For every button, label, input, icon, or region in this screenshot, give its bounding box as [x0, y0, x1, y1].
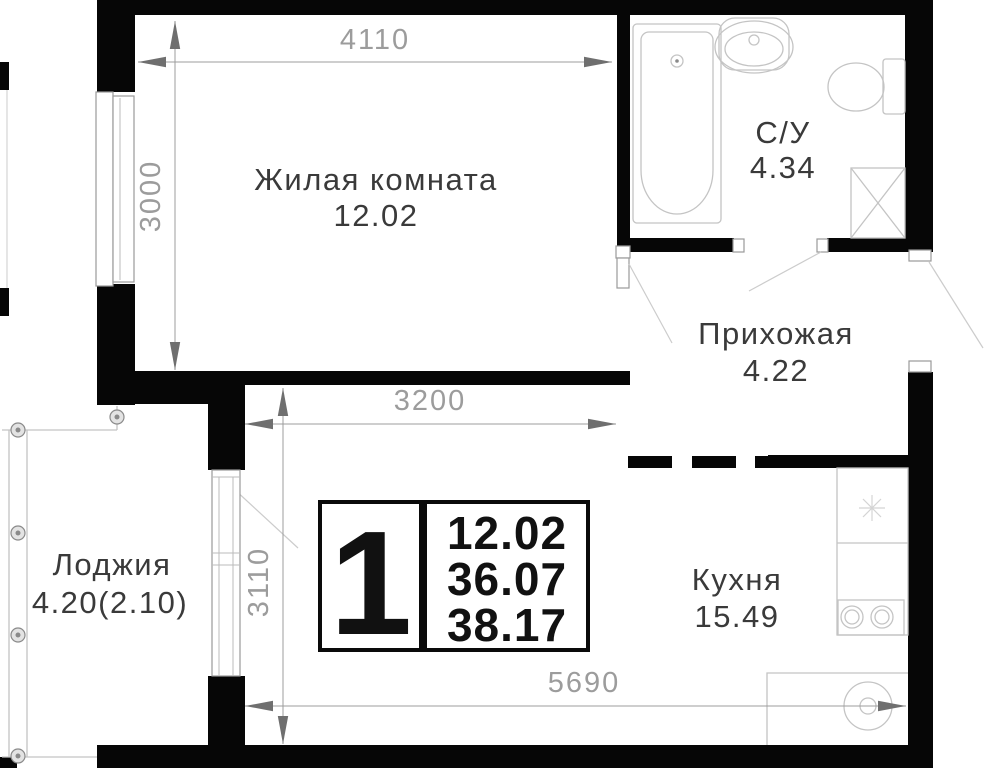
area-value: 36.07	[447, 553, 567, 605]
room-area-bathroom: 4.34	[750, 150, 816, 185]
dimension-value: 4110	[340, 24, 410, 56]
dimension-arrow	[584, 57, 612, 67]
room-label-kitchen: Кухня	[692, 562, 782, 597]
loggia-post-icon	[11, 423, 25, 437]
dimension-value: 3200	[394, 385, 467, 417]
dimension-arrow	[138, 57, 166, 67]
wall-segment	[905, 0, 933, 250]
wall-segment	[908, 372, 933, 768]
living-area-value: 12.02	[447, 507, 567, 559]
window-living	[96, 92, 134, 286]
neighbor-wall-tab	[0, 288, 9, 316]
room-area-loggia: 4.20(2.10)	[32, 585, 188, 620]
jamb-marker	[733, 239, 744, 252]
window-frame	[113, 96, 134, 282]
bathtub-icon	[633, 24, 721, 223]
dimension-arrow	[588, 419, 616, 429]
room-label-bathroom: С/У	[755, 115, 810, 150]
dimension-arrow	[245, 701, 273, 711]
dimension-living-height: 3000	[135, 21, 180, 370]
dimension-value: 3110	[243, 547, 275, 617]
wall-segment	[133, 371, 630, 385]
room-area-hallway: 4.22	[743, 353, 809, 388]
loggia-post-icon	[110, 410, 124, 424]
dimension-kitchen-height: 3110	[243, 388, 288, 744]
wall-segment	[208, 676, 245, 746]
neighbor-wall-tab	[0, 62, 9, 90]
zone-boundary-dash	[755, 456, 768, 468]
door-leaf-living	[617, 258, 629, 288]
toilet-icon	[828, 59, 905, 114]
room-area-kitchen: 15.49	[694, 599, 779, 634]
apartment-info-box: 1 12.02 36.07 38.17	[320, 501, 588, 666]
floor-plan-page: 4110 3000 3200 3110 5690 Жилая комната 1…	[0, 0, 985, 768]
jamb-marker	[616, 246, 630, 258]
jamb-marker	[817, 239, 828, 252]
floor-plan: 4110 3000 3200 3110 5690 Жилая комната 1…	[0, 0, 985, 768]
wall-segment	[97, 0, 933, 15]
balcony-frame	[212, 470, 240, 676]
window-frame	[96, 92, 113, 286]
loggia-post-icon	[11, 749, 25, 763]
dimension-arrow	[170, 342, 180, 370]
dimension-arrow	[170, 21, 180, 49]
zone-boundary-dash	[628, 456, 672, 468]
loggia-post-icon	[11, 526, 25, 540]
vent-icon	[859, 495, 885, 521]
dimension-arrow	[245, 419, 273, 429]
wall-segment	[97, 0, 135, 92]
jamb-marker	[909, 361, 931, 372]
wall-segment	[768, 455, 908, 468]
room-label-loggia: Лоджия	[53, 547, 172, 582]
dimension-value: 5690	[548, 667, 621, 699]
dimension-arrow	[278, 716, 288, 744]
washing-machine-icon	[851, 168, 905, 238]
zone-boundary-dash	[692, 456, 736, 468]
room-label-hallway: Прихожая	[698, 316, 854, 351]
loggia-post-icon	[11, 628, 25, 642]
wall-segment	[630, 238, 734, 252]
dimension-living-width: 4110	[138, 24, 612, 67]
wall-segment	[208, 371, 245, 470]
wall-segment	[97, 745, 933, 768]
rooms-count: 1	[330, 501, 412, 666]
dimension-value: 3000	[135, 160, 167, 233]
wall-segment	[617, 0, 630, 246]
dimension-kitchen-width: 3200	[245, 385, 616, 429]
balcony-door-window	[212, 470, 240, 676]
dimension-arrow	[278, 388, 288, 416]
door-swing-entrance	[929, 262, 983, 348]
jamb-marker	[909, 250, 931, 261]
room-label-living: Жилая комната	[254, 162, 497, 197]
door-swing-living	[629, 264, 672, 343]
bath-sink-icon	[715, 18, 793, 73]
total-area-value: 38.17	[447, 599, 567, 651]
door-swing-bathroom	[749, 252, 821, 291]
room-area-living: 12.02	[333, 198, 418, 233]
stove-icon	[838, 600, 904, 635]
